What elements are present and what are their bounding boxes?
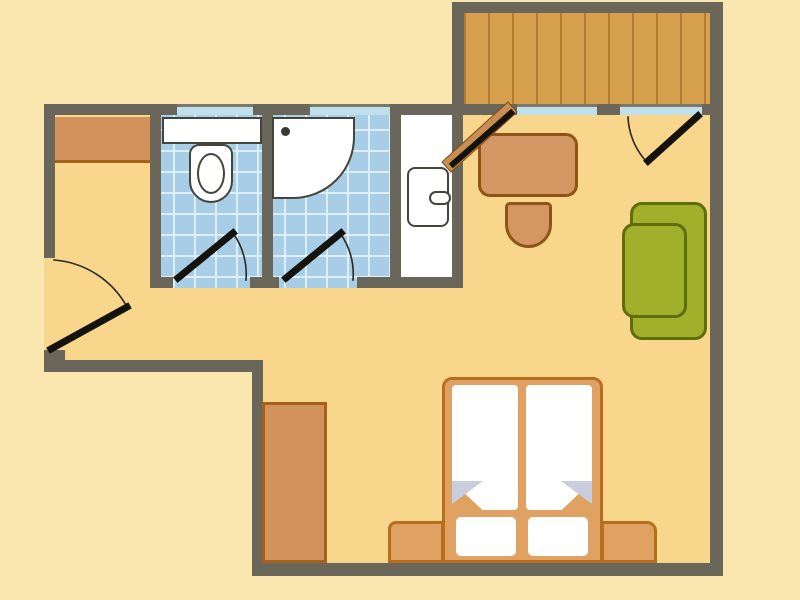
window-shower [310,104,390,115]
wall-top-left-a [44,104,177,115]
wall-room-top-nub [597,104,620,115]
wall-bottom [252,563,723,576]
wall-hall-bottom [44,360,263,372]
wall-bath-left [150,115,161,288]
balcony-deck [464,13,710,104]
wall-room-top-a [466,104,517,115]
wall-top-left-b [390,104,466,115]
wall-bath-bottom-b [250,277,279,288]
desk [478,133,578,197]
desk-chair [505,202,552,248]
wc-cistern [162,117,262,144]
wall-bath-bottom-a [150,277,173,288]
bed-bench-left [388,521,444,563]
pillow-left [456,517,516,556]
wall-shower-vanity [390,115,401,288]
wall-vanity-right [452,115,463,288]
pillow-right [528,517,588,556]
window-balcony-left [517,104,597,115]
toilet-bowl [197,153,225,194]
floor-plan-canvas [0,0,800,600]
shower-drain [281,127,290,136]
wall-balcony-top [455,2,723,13]
wall-top-nub-1 [253,104,310,115]
wall-bath-bottom-c [357,277,463,288]
bottom-wardrobe [262,402,327,563]
hall-wardrobe [55,117,150,163]
daybed-front-cushion [622,223,687,318]
bed-bench-right [601,521,657,563]
window-wc [177,104,253,115]
wall-balcony-left [452,2,464,104]
window-balcony-right [620,104,702,115]
wall-left [44,104,55,258]
vanity-handle [429,191,451,205]
wall-right [710,2,723,576]
